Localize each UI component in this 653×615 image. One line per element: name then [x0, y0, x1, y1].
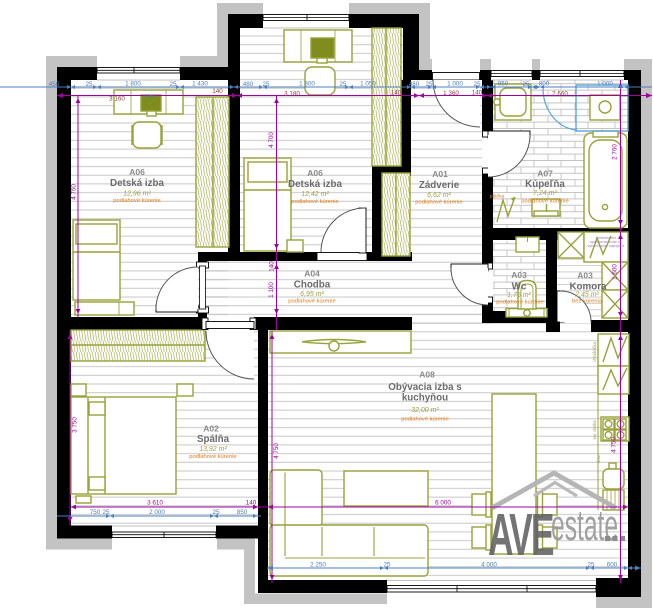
svg-text:7,24 m²: 7,24 m²	[533, 190, 557, 197]
svg-text:750: 750	[90, 509, 101, 516]
svg-text:podlahové kúrenie: podlahové kúrenie	[401, 417, 448, 423]
svg-text:25: 25	[425, 81, 433, 88]
svg-text:25: 25	[383, 562, 391, 569]
svg-text:A03: A03	[577, 271, 593, 281]
svg-text:140: 140	[391, 90, 402, 97]
svg-text:podlahové kúrenie: podlahové kúrenie	[415, 200, 462, 206]
svg-text:12,42 m²: 12,42 m²	[301, 191, 329, 198]
svg-text:4 750: 4 750	[273, 443, 280, 459]
svg-text:1 800: 1 800	[299, 81, 315, 88]
svg-text:práčka: práčka	[490, 194, 505, 200]
svg-text:A01: A01	[432, 169, 448, 179]
svg-text:2 660: 2 660	[552, 91, 568, 98]
svg-text:Kúpeľňa: Kúpeľňa	[525, 179, 565, 190]
svg-text:podlahové kúrenie: podlahové kúrenie	[291, 199, 338, 205]
svg-text:chladnička: chladnička	[592, 341, 597, 361]
svg-text:3 180: 3 180	[284, 91, 300, 98]
svg-text:podlahové kúrenie: podlahové kúrenie	[189, 454, 236, 460]
svg-text:kuchyňou: kuchyňou	[402, 393, 448, 404]
svg-text:25: 25	[85, 81, 93, 88]
svg-text:2,45 m²: 2,45 m²	[574, 292, 599, 299]
svg-text:25: 25	[522, 81, 530, 88]
svg-text:140: 140	[246, 500, 257, 507]
svg-text:25: 25	[339, 81, 347, 88]
svg-text:480: 480	[243, 81, 254, 88]
svg-text:3 750: 3 750	[72, 417, 79, 433]
svg-text:140: 140	[472, 90, 483, 97]
svg-text:3 160: 3 160	[109, 96, 125, 103]
svg-text:140: 140	[269, 261, 276, 272]
svg-text:950: 950	[498, 81, 509, 88]
svg-text:1 050: 1 050	[360, 81, 376, 88]
svg-text:A06: A06	[307, 168, 323, 178]
svg-text:var. doska: var. doska	[592, 420, 597, 440]
svg-text:1 090: 1 090	[143, 94, 155, 100]
svg-text:4 760: 4 760	[71, 184, 78, 200]
svg-text:podlahové kúrenie: podlahové kúrenie	[113, 198, 160, 204]
svg-text:Zádverie: Zádverie	[419, 180, 460, 191]
svg-text:1 800: 1 800	[125, 81, 141, 88]
svg-text:25: 25	[262, 81, 270, 88]
svg-text:A06: A06	[129, 167, 145, 177]
svg-text:3 610: 3 610	[147, 500, 163, 507]
svg-text:25: 25	[169, 81, 177, 88]
svg-text:1 000: 1 000	[597, 81, 613, 88]
svg-text:600: 600	[607, 562, 618, 569]
svg-text:A04: A04	[304, 269, 320, 279]
svg-text:25: 25	[212, 509, 220, 516]
svg-text:AVE: AVE	[488, 503, 553, 568]
svg-text:4 000: 4 000	[481, 562, 497, 569]
svg-text:140: 140	[212, 88, 223, 95]
svg-text:13,92 m²: 13,92 m²	[199, 446, 227, 453]
svg-text:podlahové kúrenie: podlahové kúrenie	[496, 300, 543, 306]
svg-text:Detská izba: Detská izba	[288, 179, 342, 190]
svg-text:32,00 m²: 32,00 m²	[411, 407, 439, 414]
svg-text:6,62 m²: 6,62 m²	[427, 192, 451, 199]
svg-text:2 760: 2 760	[612, 144, 619, 160]
svg-text:bez kúrenia: bez kúrenia	[572, 299, 603, 305]
svg-text:A07: A07	[537, 169, 553, 179]
svg-text:6 000: 6 000	[435, 500, 451, 507]
svg-text:Chodba: Chodba	[294, 280, 331, 291]
svg-text:800: 800	[539, 81, 550, 88]
svg-text:2 000: 2 000	[149, 509, 165, 516]
svg-text:1,76 m²: 1,76 m²	[507, 292, 531, 299]
svg-text:podlahové kúrenie: podlahové kúrenie	[521, 199, 568, 205]
svg-text:Obývacia izba s: Obývacia izba s	[388, 382, 462, 393]
svg-text:A02: A02	[203, 424, 219, 434]
svg-text:estate: estate	[551, 501, 618, 550]
svg-text:12,96 m²: 12,96 m²	[123, 191, 151, 198]
svg-text:450: 450	[49, 81, 60, 88]
svg-text:vykurovanie napojené: vykurovanie napojené	[588, 244, 625, 248]
svg-text:podlahové kúrenie: podlahové kúrenie	[288, 299, 335, 305]
svg-text:6,95 m²: 6,95 m²	[300, 291, 324, 298]
svg-text:1 600: 1 600	[612, 264, 619, 280]
svg-text:25: 25	[473, 81, 481, 88]
svg-text:4 750: 4 750	[611, 437, 618, 453]
svg-text:4 700: 4 700	[268, 132, 275, 148]
svg-text:480: 480	[409, 81, 420, 88]
svg-text:2 250: 2 250	[310, 562, 326, 569]
svg-text:Detská izba: Detská izba	[110, 178, 164, 189]
svg-text:1 360: 1 360	[443, 90, 459, 97]
svg-text:850: 850	[237, 509, 248, 516]
svg-text:A08: A08	[419, 370, 435, 380]
svg-text:Wc: Wc	[512, 282, 527, 293]
svg-text:1 430: 1 430	[192, 81, 208, 88]
svg-text:drez: drez	[596, 455, 601, 463]
svg-text:25: 25	[102, 509, 110, 516]
svg-text:25: 25	[587, 562, 595, 569]
svg-text:A03: A03	[511, 270, 527, 280]
svg-text:1 100: 1 100	[268, 282, 275, 298]
svg-text:1 000: 1 000	[447, 81, 463, 88]
svg-text:Spálňa: Spálňa	[197, 434, 230, 445]
